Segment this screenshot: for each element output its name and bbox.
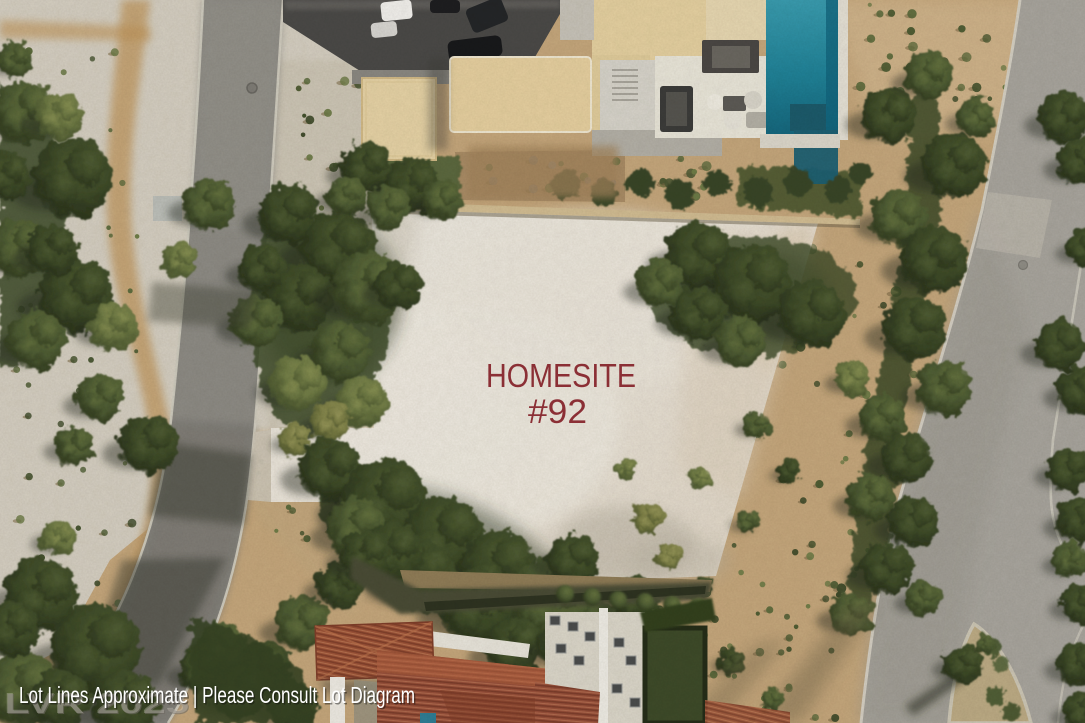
svg-text:#92: #92 — [528, 393, 587, 431]
svg-text:Lot Lines Approximate | Please: Lot Lines Approximate | Please Consult L… — [19, 682, 415, 708]
svg-text:HOMESITE: HOMESITE — [486, 357, 636, 394]
